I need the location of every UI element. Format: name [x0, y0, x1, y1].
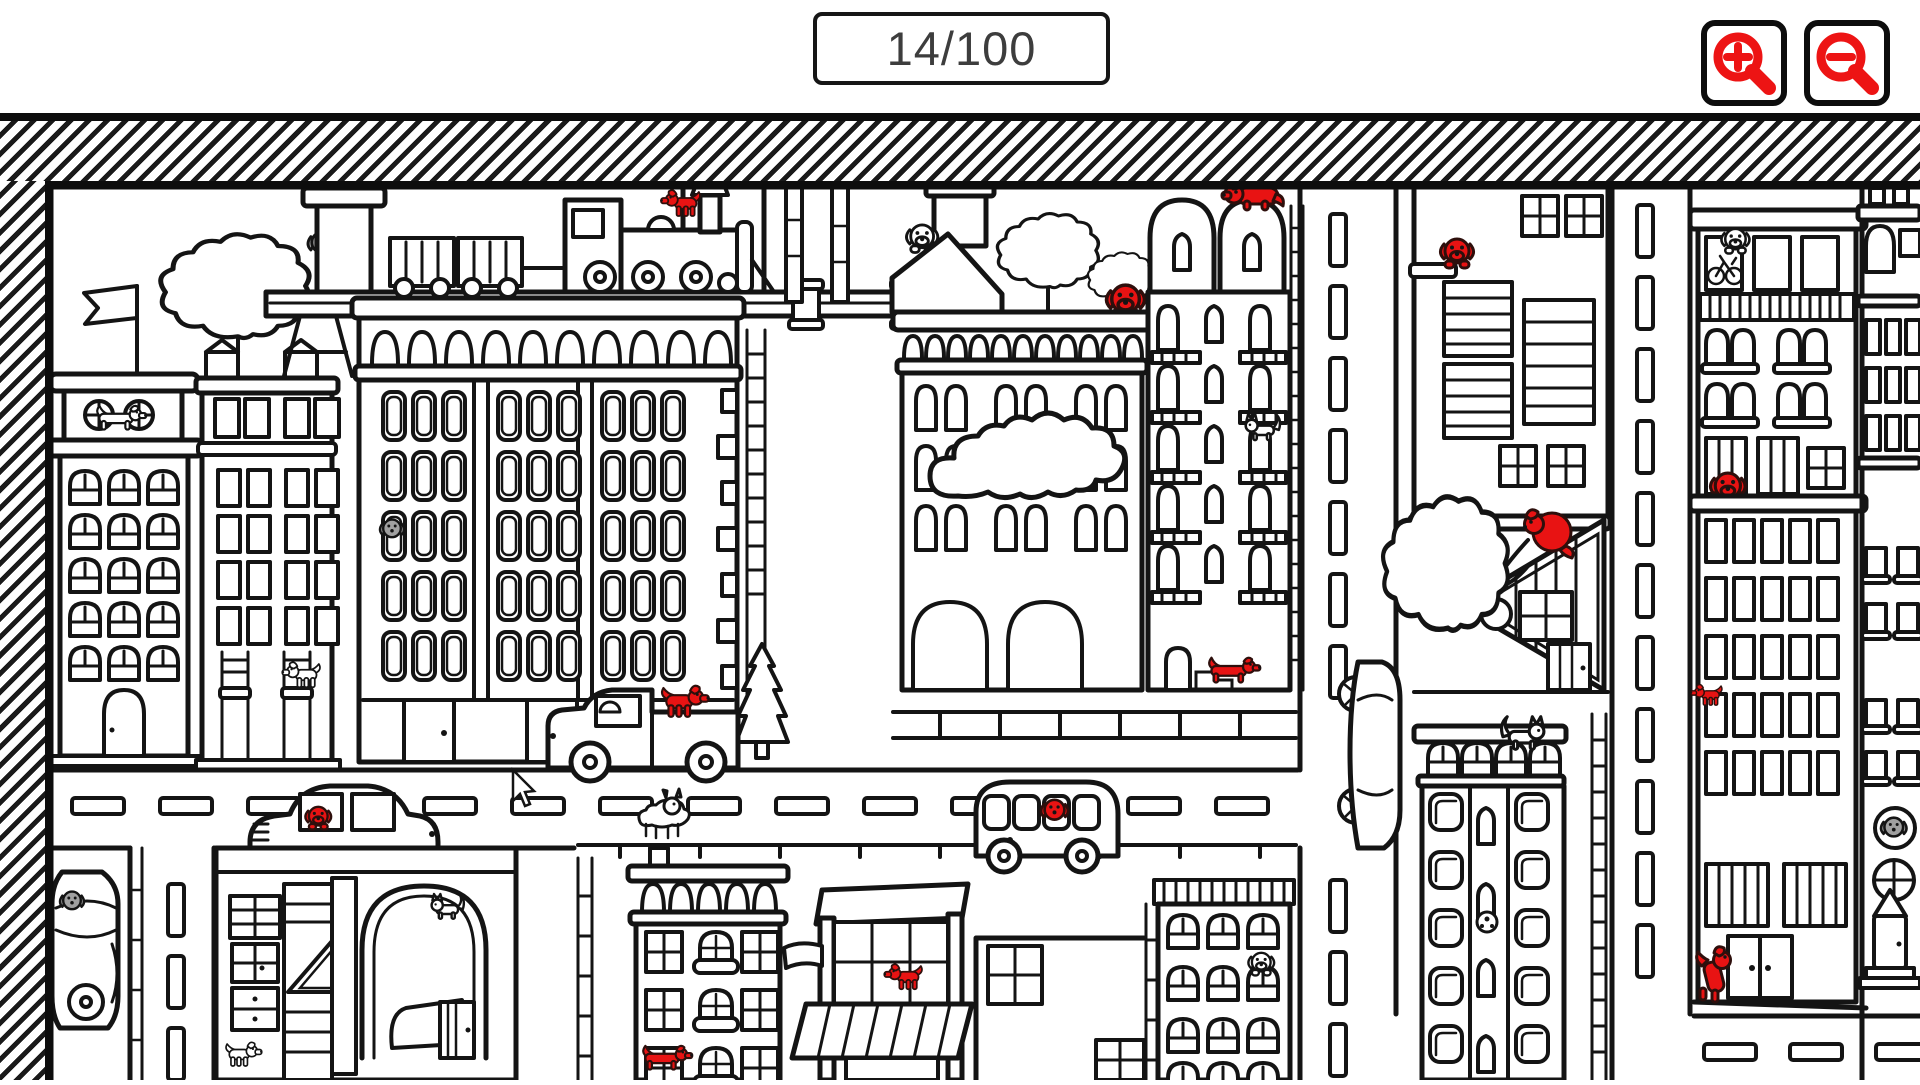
- chair-building: [196, 340, 340, 770]
- puzzle-scene[interactable]: [45, 181, 1920, 1080]
- balcony-building: [1148, 200, 1303, 690]
- garage-house: [216, 848, 516, 1080]
- found-counter-text: 14/100: [887, 21, 1037, 76]
- white-dog-driver[interactable]: [600, 702, 620, 712]
- city-lineart[interactable]: [45, 181, 1920, 1080]
- gable-roof: [892, 184, 1002, 312]
- red-dog-curled-on-branch[interactable]: [1523, 510, 1573, 558]
- porthole-dog-window[interactable]: [1875, 808, 1915, 848]
- arcade-building-bottom-left: [628, 848, 788, 1080]
- arcade-building-bottom-right: [1414, 726, 1566, 1080]
- parking-strip: [52, 848, 142, 1080]
- block-edge-pole: [578, 858, 592, 1080]
- chimney-building: [303, 188, 385, 292]
- zoom-in-magnifier-plus-icon: [1711, 30, 1777, 96]
- vertical-road-2: [1612, 185, 1690, 1080]
- zoom-in-button[interactable]: [1701, 20, 1787, 106]
- far-right-strip: [1858, 185, 1920, 1080]
- drainpipe: [1592, 714, 1606, 1080]
- plain-building: [976, 938, 1144, 1080]
- zoom-out-button[interactable]: [1804, 20, 1890, 106]
- flag-tower: [45, 286, 203, 766]
- bus: [976, 782, 1118, 872]
- bottom-right-road: [1694, 1016, 1920, 1060]
- header-divider: [0, 113, 1920, 121]
- sidewalk-mid: [893, 712, 1296, 738]
- pine-tree: [736, 644, 788, 758]
- zoom-out-magnifier-minus-icon: [1814, 30, 1880, 96]
- alley-road: [168, 848, 214, 1080]
- found-counter: 14/100: [813, 12, 1110, 85]
- arch-window-building: [1146, 880, 1294, 1080]
- hatched-border-top: [0, 121, 1920, 181]
- parked-car: [52, 872, 118, 1028]
- car-on-vertical-road: [1339, 662, 1400, 848]
- hatched-border-left: [0, 181, 45, 1080]
- vertical-road-1: [1300, 185, 1396, 1080]
- steam-train: [390, 182, 774, 297]
- right-tower-block: [1690, 210, 1866, 1008]
- corner-shop: [784, 884, 972, 1080]
- obelisk-monument: [1860, 890, 1920, 988]
- shutter-building: [1410, 181, 1610, 529]
- header-bar: 14/100: [0, 0, 1920, 113]
- soccer-ball[interactable]: [1477, 912, 1497, 932]
- arch-building: [893, 312, 1151, 690]
